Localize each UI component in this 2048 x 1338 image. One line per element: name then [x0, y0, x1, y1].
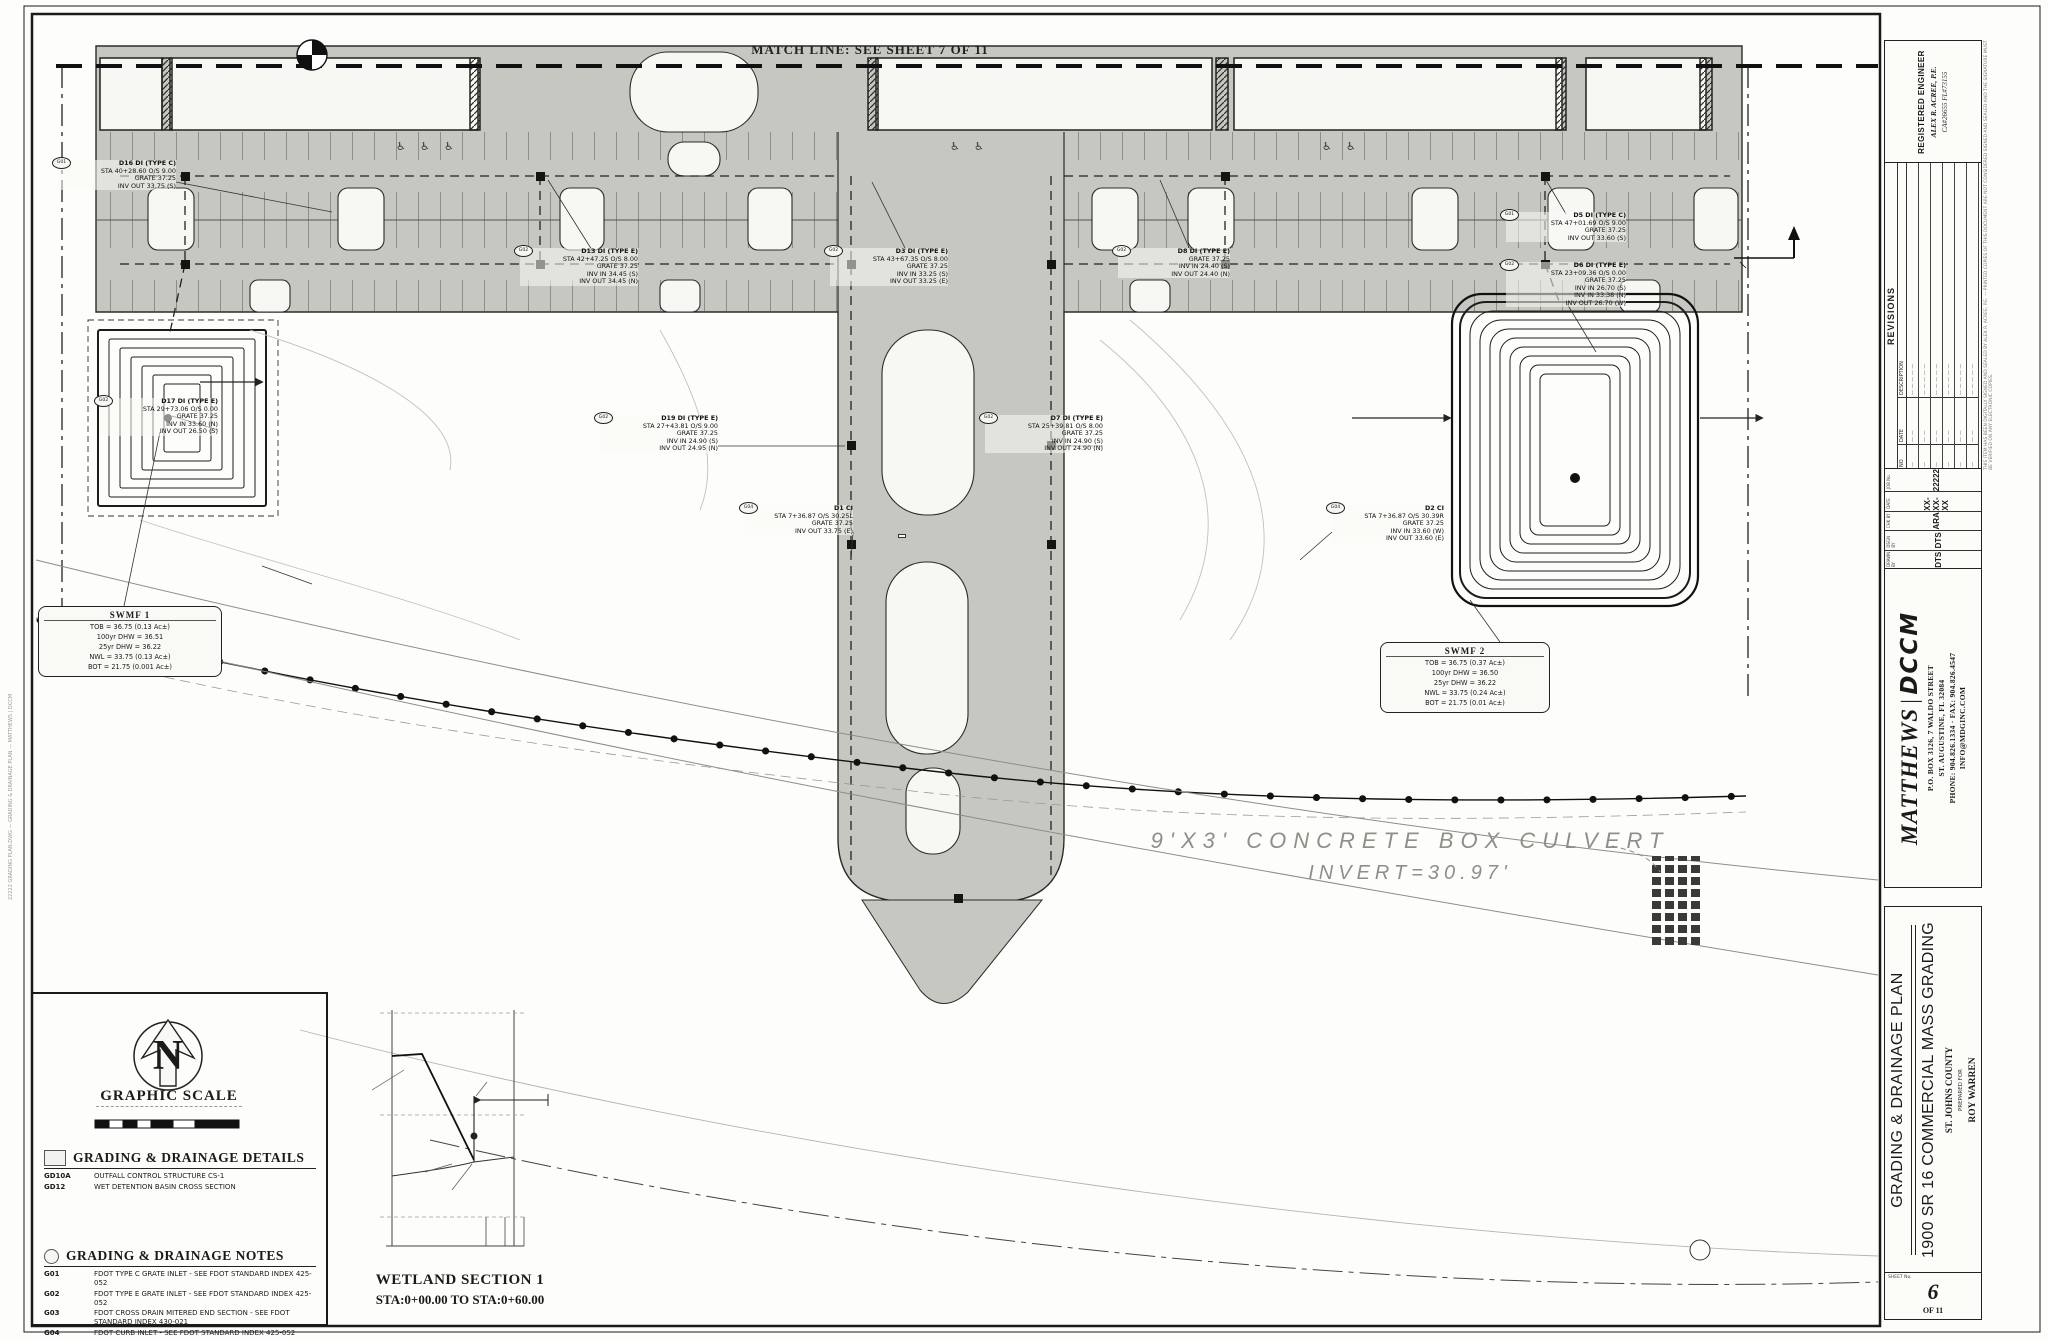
engineer-box: REGISTERED ENGINEER ALEX R. ACREE, P.E. …: [1884, 40, 1982, 164]
revision-no: —: [1943, 444, 1954, 469]
meta-box: DRAWN BY DTS DSGN BY DTS CHK BY ARA DATE…: [1884, 468, 1982, 570]
accessible-parking-icon: ♿: [444, 140, 454, 153]
text-line: 25yr DHW = 36.22: [44, 643, 216, 653]
accessible-parking-icon: ♿: [974, 140, 984, 153]
revision-desc: — — — — —: [1967, 163, 1978, 397]
text-line: INV OUT 33.60 (E): [1332, 535, 1444, 543]
accessible-parking-icon: ♿: [1322, 140, 1332, 153]
accessible-parking-icon: ♿: [1346, 140, 1356, 153]
north-letter: N: [138, 1032, 198, 1080]
note-key-badge: G02: [594, 412, 613, 424]
revision-row: — — — — — — — —: [1943, 163, 1955, 469]
callout-text: D13 DI (TYPE E)STA 42+47.25 O/S 8.00GRAT…: [520, 248, 638, 286]
meta-cell: DRAWN BY DTS: [1885, 550, 1981, 569]
scanned-plan-sheet: MATCH LINE: SEE SHEET 7 OF 11 9'X3' CONC…: [0, 0, 2048, 1338]
text-line: BOT = 21.75 (0.001 Ac±): [44, 663, 216, 673]
text-line: INV OUT 26.50 (S): [100, 428, 218, 436]
details-title: GRADING & DRAINAGE DETAILS: [73, 1150, 304, 1166]
swmf-title: SWMF 2: [1386, 646, 1544, 657]
accessible-parking-icon: ♿: [950, 140, 960, 153]
revision-date: — —: [1931, 397, 1942, 444]
text-line: BOT = 21.75 (0.01 Ac±): [1386, 699, 1544, 709]
accessible-parking-icon: ♿: [396, 140, 406, 153]
callout-text: D2 CISTA 7+36.87 O/S 30.39RGRATE 37.25IN…: [1332, 505, 1444, 543]
revision-date: — —: [1907, 397, 1918, 444]
engineer-heading: REGISTERED ENGINEER: [1917, 50, 1926, 154]
revision-no: —: [1955, 444, 1966, 469]
revisions-col-desc: DESCRIPTION: [1898, 163, 1906, 397]
revision-row: — — — — — — — —: [1919, 163, 1931, 469]
accessible-parking-icon: ♿: [420, 140, 430, 153]
note-key-badge: G02: [94, 395, 113, 407]
note-key-badge: G02: [1500, 259, 1519, 271]
revision-desc: — — — — —: [1907, 163, 1918, 397]
county-label: ST. JOHNS COUNTY: [1944, 1047, 1954, 1133]
note-key-icon: [44, 1249, 59, 1264]
detail-code: GD10A: [44, 1172, 94, 1181]
text-line: NWL = 33.75 (0.13 Ac±): [44, 653, 216, 663]
note-item: G01 FDOT TYPE C GRATE INLET - SEE FDOT S…: [44, 1270, 316, 1288]
structure-callout: G02 D19 DI (TYPE E)STA 27+43.81 O/S 9.00…: [600, 415, 718, 453]
wetland-section-stations: STA:0+00.00 TO STA:0+60.00: [348, 1292, 572, 1308]
firm-box: MATTHEWS|DCCM P.O. BOX 3126, 7 WALDO STR…: [1884, 568, 1982, 888]
structure-callout: G02 D6 DI (TYPE E)STA 23+09.36 O/S 0.00G…: [1506, 262, 1626, 307]
project-title: 1900 SR 16 COMMERCIAL MASS GRADING: [1920, 922, 1938, 1258]
address-line4: INFO@MDGINC.COM: [1958, 653, 1969, 804]
callout-text: D3 DI (TYPE E)STA 43+67.35 O/S 8.00GRATE…: [830, 248, 948, 286]
culvert-label: 9'X3' CONCRETE BOX CULVERT: [1140, 828, 1680, 854]
swmf-values: TOB = 36.75 (0.13 Ac±)100yr DHW = 36.512…: [44, 623, 216, 672]
sheet-number: 6: [1885, 1279, 1981, 1305]
detail-text: OUTFALL CONTROL STRUCTURE CS-1: [94, 1172, 316, 1181]
text-line: 100yr DHW = 36.51: [44, 633, 216, 643]
meta-value: DTS: [1896, 551, 1981, 569]
callout-text: D7 DI (TYPE E)STA 25+39.81 O/S 8.00GRATE…: [985, 415, 1103, 453]
note-code: G01: [44, 1270, 94, 1288]
note-item: G03 FDOT CROSS DRAIN MITERED END SECTION…: [44, 1309, 316, 1327]
text-line: INV OUT 26.70 (W): [1506, 300, 1626, 308]
note-code: G03: [44, 1309, 94, 1327]
seal-note: THIS ITEM HAS BEEN DIGITALLY SIGNED AND …: [1984, 40, 1996, 470]
engineer-license: CA#26655 FL#73155: [1941, 72, 1949, 133]
meta-label: DRAWN BY: [1885, 551, 1896, 569]
note-key-badge: G02: [824, 245, 843, 257]
text-line: NWL = 33.75 (0.24 Ac±): [1386, 689, 1544, 699]
revisions-header: NO DATE DESCRIPTION: [1898, 163, 1907, 469]
meta-value: 22222: [1891, 469, 1981, 491]
revision-date: — —: [1967, 397, 1978, 444]
logo-divider: |: [1897, 695, 1922, 708]
meta-value: XX-XX-XX: [1891, 492, 1981, 510]
revision-no: —: [1907, 444, 1918, 469]
text-line: INV OUT 24.90 (N): [985, 445, 1103, 453]
revision-row: — — — — — — — —: [1967, 163, 1979, 469]
structure-callout: G02 D13 DI (TYPE E)STA 42+47.25 O/S 8.00…: [520, 248, 638, 286]
revision-date: — —: [1919, 397, 1930, 444]
swmf-data-box: SWMF 2 TOB = 36.75 (0.37 Ac±)100yr DHW =…: [1380, 642, 1550, 713]
notes-title: GRADING & DRAINAGE NOTES: [66, 1248, 284, 1264]
note-key-badge: G04: [1326, 502, 1345, 514]
note-code: G02: [44, 1290, 94, 1308]
note-key-badge: G02: [979, 412, 998, 424]
plot-stamp-text: 22222 GRADING PLAN.DWG — GRADING & DRAIN…: [8, 380, 20, 900]
meta-value: DTS: [1896, 531, 1981, 549]
swmf-title: SWMF 1: [44, 610, 216, 621]
meta-value: ARA: [1891, 512, 1981, 530]
text-line: INV OUT 33.75 (S): [58, 183, 176, 191]
graphic-scale-title: GRAPHIC SCALE: [96, 1088, 242, 1105]
note-key-badge: G02: [1112, 245, 1131, 257]
detail-item: GD10A OUTFALL CONTROL STRUCTURE CS-1: [44, 1172, 316, 1181]
plot-stamp: 22222 GRADING PLAN.DWG — GRADING & DRAIN…: [8, 380, 20, 900]
text-line: 25yr DHW = 36.22: [1386, 679, 1544, 689]
details-heading: GRADING & DRAINAGE DETAILS: [44, 1150, 316, 1169]
revisions-title: REVISIONS: [1885, 163, 1898, 469]
revisions-rows: — — — — — — — — — — — — — — — — — — — — …: [1907, 163, 1979, 469]
revisions-col-no: NO: [1898, 444, 1906, 469]
revision-desc: — — — — —: [1955, 163, 1966, 397]
wetland-section-title: WETLAND SECTION 1: [360, 1272, 560, 1289]
meta-cell: CHK BY ARA: [1885, 511, 1981, 530]
detail-text: WET DETENTION BASIN CROSS SECTION: [94, 1183, 316, 1192]
address-line2: ST. AUGUSTINE, FL 32084: [1937, 653, 1948, 804]
revisions-box: REVISIONS NO DATE DESCRIPTION — — — — — …: [1884, 162, 1982, 470]
callout-text: D8 DI (TYPE E)GRATE 37.25INV IN 24.40 (S…: [1118, 248, 1230, 278]
callout-text: D16 DI (TYPE C)STA 40+28.60 O/S 9.00GRAT…: [58, 160, 176, 190]
note-text: FDOT CROSS DRAIN MITERED END SECTION - S…: [94, 1309, 316, 1327]
meta-label: DSGN BY: [1885, 531, 1896, 549]
note-key-badge: G01: [1500, 209, 1519, 221]
meta-table: DRAWN BY DTS DSGN BY DTS CHK BY ARA DATE…: [1885, 469, 1981, 569]
text-line: INV OUT 33.75 (E): [745, 528, 853, 536]
revision-date: — —: [1943, 397, 1954, 444]
text-line: 100yr DHW = 36.50: [1386, 669, 1544, 679]
detail-code: GD12: [44, 1183, 94, 1192]
note-text: FDOT TYPE E GRATE INLET - SEE FDOT STAND…: [94, 1290, 316, 1308]
sheet-number-box: SHEET No. 6 OF 11: [1884, 1272, 1982, 1320]
address-line3: PHONE: 904.826.1334 · FAX: 904.826.4547: [1948, 653, 1959, 804]
title-divider: [1911, 925, 1916, 1255]
structure-callout: G02 D8 DI (TYPE E)GRATE 37.25INV IN 24.4…: [1118, 248, 1230, 278]
revision-row: — — — — — — — —: [1907, 163, 1919, 469]
structure-callout: G02 D17 DI (TYPE E)STA 29+73.06 O/S 0.00…: [100, 398, 218, 436]
sheet-title: GRADING & DRAINAGE PLAN: [1889, 972, 1907, 1208]
callout-text: D17 DI (TYPE E)STA 29+73.06 O/S 0.00GRAT…: [100, 398, 218, 436]
notes-section: GRADING & DRAINAGE NOTES G01 FDOT TYPE C…: [44, 1248, 316, 1338]
text-line: TOB = 36.75 (0.37 Ac±): [1386, 659, 1544, 669]
detail-key-icon: [44, 1150, 66, 1166]
structure-callout: G01 D16 DI (TYPE C)STA 40+28.60 O/S 9.00…: [58, 160, 176, 190]
structure-callout: G02 D7 DI (TYPE E)STA 25+39.81 O/S 8.00G…: [985, 415, 1103, 453]
revision-desc: — — — — —: [1919, 163, 1930, 397]
structure-callout: G02 D3 DI (TYPE E)STA 43+67.35 O/S 8.00G…: [830, 248, 948, 286]
sheet-title-box: GRADING & DRAINAGE PLAN 1900 SR 16 COMME…: [1884, 906, 1982, 1274]
callout-text: D6 DI (TYPE E)STA 23+09.36 O/S 0.00GRATE…: [1506, 262, 1626, 307]
culvert-invert-label: INVERT=30.97': [1140, 862, 1680, 885]
notes-heading: GRADING & DRAINAGE NOTES: [44, 1248, 316, 1267]
text-line: INV OUT 34.45 (N): [520, 278, 638, 286]
details-section: GRADING & DRAINAGE DETAILS GD10A OUTFALL…: [44, 1150, 316, 1192]
note-item: G04 FDOT CURB INLET - SEE FDOT STANDARD …: [44, 1329, 316, 1338]
seal-note-text: THIS ITEM HAS BEEN DIGITALLY SIGNED AND …: [1984, 40, 1996, 470]
revision-row: — — — — — — — —: [1931, 163, 1943, 469]
sheet-of: OF 11: [1885, 1306, 1981, 1315]
notes-list: G01 FDOT TYPE C GRATE INLET - SEE FDOT S…: [44, 1270, 316, 1338]
details-list: GD10A OUTFALL CONTROL STRUCTURE CS-1 GD1…: [44, 1172, 316, 1192]
structure-callout: G04 D1 CISTA 7+36.87 O/S 30.25LGRATE 37.…: [745, 505, 853, 535]
note-text: FDOT CURB INLET - SEE FDOT STANDARD INDE…: [94, 1329, 316, 1338]
text-line: TOB = 36.75 (0.13 Ac±): [44, 623, 216, 633]
meta-cell: DSGN BY DTS: [1885, 530, 1981, 549]
structure-callout: G04 D2 CISTA 7+36.87 O/S 30.39RGRATE 37.…: [1332, 505, 1444, 543]
match-line-label: MATCH LINE: SEE SHEET 7 OF 11: [650, 42, 1090, 58]
engineer-name: ALEX R. ACREE, P.E.: [1929, 66, 1938, 137]
client-name: ROY WARREN: [1968, 1057, 1978, 1122]
meta-cell: JOB No. 22222: [1885, 469, 1981, 491]
structure-callout: G01 D5 DI (TYPE C)STA 47+01.69 O/S 9.00G…: [1506, 212, 1626, 242]
text-line: INV OUT 33.60 (S): [1506, 235, 1626, 243]
revision-no: —: [1919, 444, 1930, 469]
revision-no: —: [1931, 444, 1942, 469]
note-code: G04: [44, 1329, 94, 1338]
address-line1: P.O. BOX 3126, 7 WALDO STREET: [1926, 653, 1937, 804]
swmf-values: TOB = 36.75 (0.37 Ac±)100yr DHW = 36.502…: [1386, 659, 1544, 708]
revision-desc: — — — — —: [1943, 163, 1954, 397]
detail-item: GD12 WET DETENTION BASIN CROSS SECTION: [44, 1183, 316, 1192]
swmf-data-box: SWMF 1 TOB = 36.75 (0.13 Ac±)100yr DHW =…: [38, 606, 222, 677]
firm-brand: DCCM: [1897, 611, 1923, 695]
meta-cell: DATE XX-XX-XX: [1885, 491, 1981, 510]
prepared-for-label: PREPARED FOR: [1958, 1069, 1964, 1111]
firm-logo: MATTHEWS|DCCM: [1897, 611, 1923, 845]
revision-row: — — — — — — — —: [1955, 163, 1967, 469]
note-text: FDOT TYPE C GRATE INLET - SEE FDOT STAND…: [94, 1270, 316, 1288]
pipe-label: [898, 534, 906, 538]
revision-desc: — — — — —: [1931, 163, 1942, 397]
callout-text: D5 DI (TYPE C)STA 47+01.69 O/S 9.00GRATE…: [1506, 212, 1626, 242]
revisions-col-date: DATE: [1898, 397, 1906, 444]
revision-no: —: [1967, 444, 1978, 469]
scale-subnote-rule: [96, 1106, 242, 1109]
annotation-overlay: MATCH LINE: SEE SHEET 7 OF 11 9'X3' CONC…: [0, 0, 2048, 1338]
text-line: INV OUT 33.25 (E): [830, 278, 948, 286]
note-key-badge: G01: [52, 157, 71, 169]
note-key-badge: G02: [514, 245, 533, 257]
firm-name: MATTHEWS: [1897, 708, 1922, 845]
note-item: G02 FDOT TYPE E GRATE INLET - SEE FDOT S…: [44, 1290, 316, 1308]
callout-text: D19 DI (TYPE E)STA 27+43.81 O/S 9.00GRAT…: [600, 415, 718, 453]
callout-text: D1 CISTA 7+36.87 O/S 30.25LGRATE 37.25IN…: [745, 505, 853, 535]
text-line: INV OUT 24.40 (N): [1118, 271, 1230, 279]
text-line: INV OUT 24.95 (N): [600, 445, 718, 453]
revision-date: — —: [1955, 397, 1966, 444]
firm-address: P.O. BOX 3126, 7 WALDO STREET ST. AUGUST…: [1926, 653, 1970, 804]
note-key-badge: G04: [739, 502, 758, 514]
